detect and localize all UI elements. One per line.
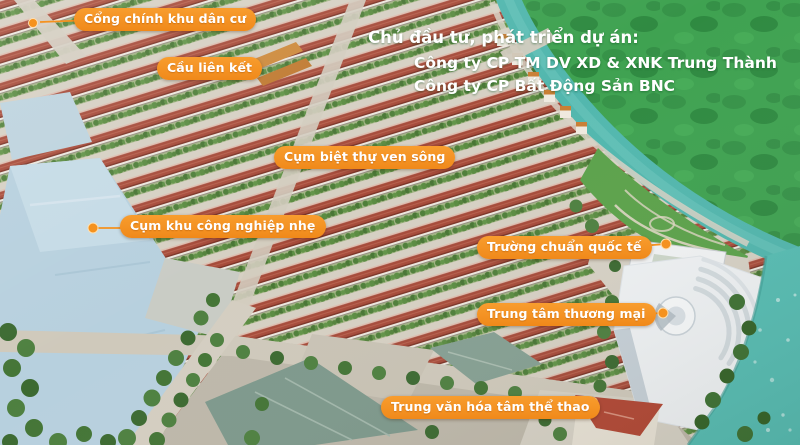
label-light-industry: Cụm khu công nghiệp nhẹ — [120, 215, 326, 238]
label-link-bridge: Cầu liên kết — [157, 57, 262, 80]
dot-light-industry — [88, 223, 98, 233]
aerial-masterplan-image: Cổng chính khu dân cư Cầu liên kết Cụm b… — [0, 0, 800, 445]
developer-company-1: Công ty CP TM DV XD & XNK Trung Thành — [414, 52, 777, 75]
developer-info: Chủ đầu tư, phát triển dự án: Công ty CP… — [368, 28, 777, 98]
label-riverside-villas: Cụm biệt thự ven sông — [274, 146, 455, 169]
label-culture-sports: Trung văn hóa tâm thể thao — [381, 396, 600, 419]
developer-heading: Chủ đầu tư, phát triển dự án: — [368, 28, 777, 47]
label-shopping-center: Trung tâm thương mại — [477, 303, 656, 326]
dot-main-gate — [29, 19, 38, 28]
label-main-gate: Cổng chính khu dân cư — [74, 8, 256, 31]
label-international-school: Trường chuẩn quốc tế — [477, 236, 652, 259]
developer-company-2: Công ty CP Bất Động Sản BNC — [414, 75, 777, 98]
dot-international-school — [661, 239, 671, 249]
dot-shopping-center — [658, 308, 668, 318]
developer-companies: Công ty CP TM DV XD & XNK Trung Thành Cô… — [414, 52, 777, 98]
